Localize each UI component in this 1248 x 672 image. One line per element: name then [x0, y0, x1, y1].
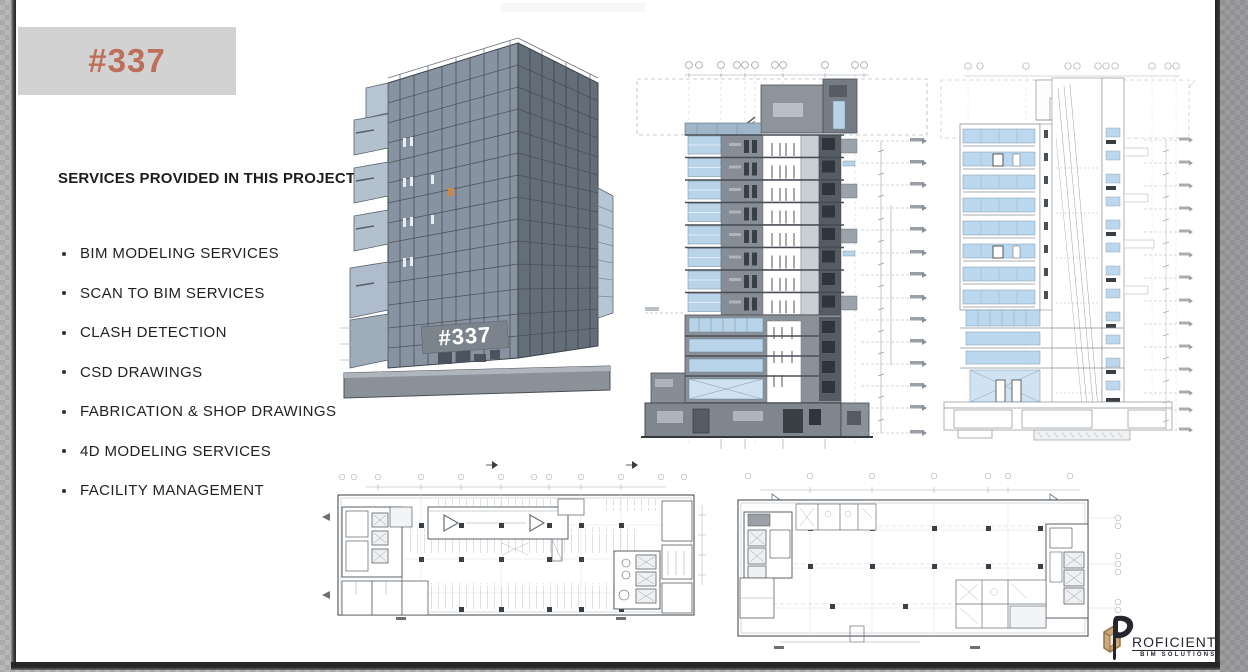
list-item: CSD DRAWINGS: [62, 364, 336, 381]
bottom-right-rooms: [956, 580, 1046, 628]
right-core: [614, 551, 660, 609]
service-label: BIM MODELING SERVICES: [80, 245, 279, 262]
slide-bottom-shadow: [11, 662, 1220, 670]
project-number-box: #337: [18, 27, 236, 95]
bullet-icon: [62, 410, 66, 414]
slide-top-artifact: [500, 3, 645, 12]
bullet-icon: [62, 291, 66, 295]
list-item: 4D MODELING SERVICES: [62, 443, 336, 460]
list-item: FACILITY MANAGEMENT: [62, 482, 336, 499]
service-label: 4D MODELING SERVICES: [80, 443, 271, 460]
ramp-shaft: [1052, 78, 1102, 426]
bullet-icon: [62, 449, 66, 453]
left-annotation: [645, 307, 683, 313]
list-item: CLASH DETECTION: [62, 324, 336, 341]
building-sign: #337: [421, 321, 509, 354]
bottom-left-rooms: [342, 581, 428, 615]
core-wall: [1040, 124, 1052, 310]
service-label: FACILITY MANAGEMENT: [80, 482, 264, 499]
building-3d-render: #337: [340, 28, 630, 410]
penthouse: [685, 79, 857, 139]
building-sign-text: #337: [438, 322, 493, 351]
logo-tagline: BIM SOLUTIONS: [1132, 652, 1216, 658]
right-shaft: [1102, 78, 1154, 426]
bullet-icon: [62, 370, 66, 374]
canvas-dim-overlay: [1220, 0, 1248, 672]
list-item: BIM MODELING SERVICES: [62, 245, 336, 262]
project-number: #337: [88, 42, 165, 80]
section-drawing-right: [938, 58, 1196, 443]
level-markers: [1144, 138, 1193, 433]
service-label: CSD DRAWINGS: [80, 364, 203, 381]
bullet-icon: [62, 489, 66, 493]
floor-plan-left: [316, 455, 708, 627]
bullet-icon: [62, 331, 66, 335]
company-logo: ROFICIENT BIM SOLUTIONS: [1096, 614, 1216, 662]
logo-monogram-icon: [1096, 614, 1138, 662]
grid-bubbles: [339, 461, 687, 490]
balcony-volumes: [350, 83, 388, 368]
list-item: SCAN TO BIM SERVICES: [62, 285, 336, 302]
slide-left-shadow: [11, 0, 16, 663]
service-label: CLASH DETECTION: [80, 324, 227, 341]
section-drawing-middle: [633, 55, 933, 450]
lit-window: [448, 188, 454, 196]
services-title: SERVICES PROVIDED IN THIS PROJECT: [58, 170, 355, 187]
grid-bubbles: [745, 473, 1073, 479]
right-rooms: [662, 501, 692, 613]
glazed-floors: [960, 124, 1040, 310]
lower-floors: [641, 315, 873, 437]
list-item: FABRICATION & SHOP DRAWINGS: [62, 403, 336, 420]
upper-floors: [685, 135, 857, 315]
bullet-icon: [62, 252, 66, 256]
right-core: [1046, 524, 1088, 618]
basement: [944, 402, 1172, 440]
image-viewer-canvas: { "slide": { "header": { "project_number…: [0, 0, 1248, 672]
service-label: FABRICATION & SHOP DRAWINGS: [80, 403, 336, 420]
logo-name: ROFICIENT: [1132, 635, 1216, 651]
presentation-slide: #337 SERVICES PROVIDED IN THIS PROJECT B…: [16, 0, 1215, 663]
parking-stalls: [408, 583, 638, 609]
service-label: SCAN TO BIM SERVICES: [80, 285, 265, 302]
top-rooms: [796, 504, 876, 530]
floor-plan-right: [720, 468, 1144, 652]
level-markers: [861, 138, 927, 436]
services-list: BIM MODELING SERVICES SCAN TO BIM SERVIC…: [62, 245, 336, 499]
